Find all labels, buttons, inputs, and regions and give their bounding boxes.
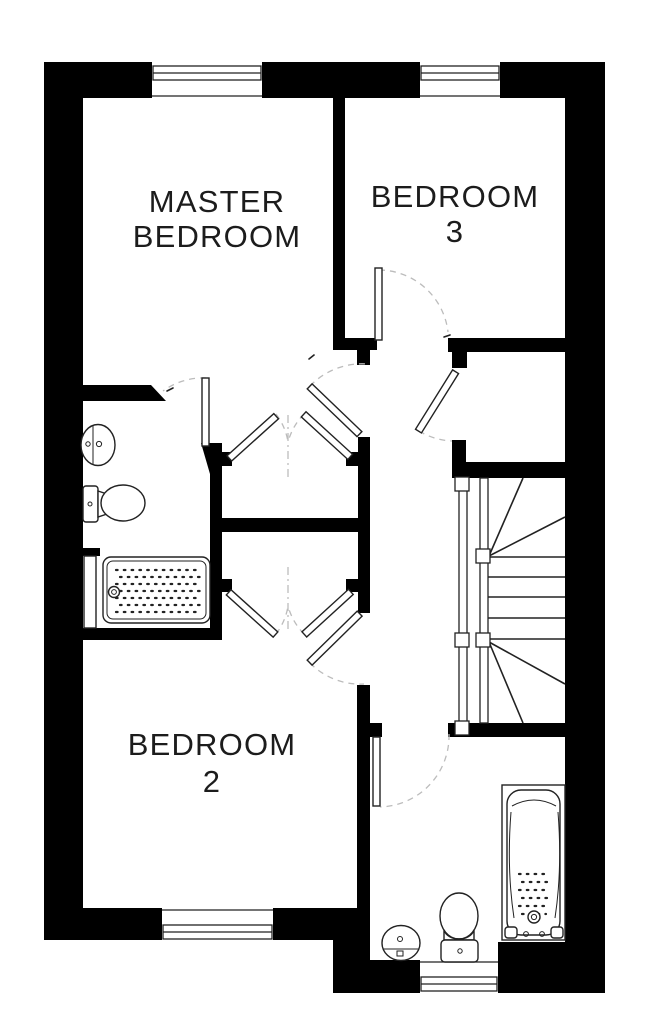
divider-end-stub bbox=[357, 350, 370, 365]
floor-plan: MASTER BEDROOM BEDROOM 3 BEDROOM 2 bbox=[0, 0, 658, 1022]
toilet-2 bbox=[440, 893, 478, 962]
top-wall-mid bbox=[262, 62, 420, 98]
room-label-bedroom2-line1: BEDROOM bbox=[128, 727, 297, 762]
door-leaf bbox=[416, 370, 459, 433]
door-swing-arc bbox=[310, 364, 367, 386]
door-swing-arc bbox=[288, 414, 304, 442]
toilet-cistern bbox=[83, 486, 98, 522]
window-bedroom2 bbox=[162, 908, 273, 940]
bathroom-door-stop bbox=[370, 723, 382, 737]
bedroom2-right-wall bbox=[357, 685, 370, 908]
bedroom2-bottom-wall-left bbox=[83, 908, 162, 940]
master-bed3-divider-wall bbox=[333, 98, 345, 338]
toilet bbox=[83, 485, 145, 522]
bath-foot bbox=[505, 927, 517, 938]
door-leaf bbox=[373, 737, 380, 806]
shower-stub-wall bbox=[83, 548, 100, 556]
room-label-master-bedroom-line2: BEDROOM bbox=[133, 219, 302, 254]
door-hallway bbox=[416, 370, 459, 441]
bathtub bbox=[502, 785, 565, 940]
stairs-outer-rail bbox=[459, 478, 467, 723]
door-bathroom2 bbox=[373, 734, 449, 807]
door-cupboard-lower bbox=[226, 567, 353, 637]
stair-winder bbox=[489, 517, 565, 556]
newel-post bbox=[476, 633, 490, 647]
room-label-bedroom2-line2: 2 bbox=[203, 764, 221, 799]
stair-winder bbox=[489, 478, 523, 556]
sink-2 bbox=[382, 926, 420, 961]
floor-plan-drawing: MASTER BEDROOM BEDROOM 3 BEDROOM 2 bbox=[0, 0, 658, 1022]
shower-screen bbox=[84, 556, 96, 628]
shower-tray bbox=[103, 557, 210, 623]
door-leaf bbox=[227, 414, 279, 461]
newel-post bbox=[476, 549, 490, 563]
toilet-bowl bbox=[101, 485, 145, 521]
toilet-cistern bbox=[441, 940, 478, 962]
stair-winder bbox=[489, 642, 523, 723]
shower-drain bbox=[109, 587, 120, 598]
door-swing-arc bbox=[379, 270, 448, 332]
bathroom-bottom-wall-right bbox=[498, 942, 605, 993]
window-bedroom3 bbox=[420, 62, 500, 98]
bedroom3-corner-post bbox=[452, 340, 467, 368]
right-wall bbox=[565, 62, 605, 993]
window-master bbox=[152, 62, 262, 98]
newel-post bbox=[455, 477, 469, 491]
bottom-step-column bbox=[333, 908, 370, 993]
bathroom-landing-wall bbox=[210, 455, 222, 638]
door-swing-arc bbox=[419, 431, 452, 441]
bathroom-bottom-wall-left bbox=[370, 960, 420, 993]
stairs-inner-rail bbox=[480, 478, 488, 723]
door-swing-arc bbox=[276, 606, 288, 634]
stairs-top-wall bbox=[452, 462, 565, 478]
cupboard-divider-wall bbox=[210, 518, 370, 532]
newel-post bbox=[455, 721, 469, 735]
window-opening bbox=[162, 908, 273, 940]
door-leaf bbox=[202, 378, 209, 446]
door-bathroom-corner bbox=[163, 378, 209, 446]
bath-drain bbox=[528, 911, 540, 923]
door-swing-arc bbox=[310, 663, 364, 684]
room-label-bedroom3-line1: BEDROOM bbox=[371, 179, 540, 214]
landing-right-wall bbox=[358, 437, 370, 613]
divider-end-bar bbox=[333, 338, 377, 350]
bath-foot bbox=[551, 927, 563, 938]
room-label-bedroom3-line2: 3 bbox=[446, 214, 464, 249]
staircase bbox=[455, 477, 565, 735]
door-swing-arc bbox=[380, 734, 449, 807]
bathroom-top-fixtures bbox=[81, 425, 210, 629]
stairs-top-post bbox=[452, 440, 466, 478]
sink-basin bbox=[382, 926, 420, 961]
door-leaf bbox=[226, 590, 278, 637]
sink bbox=[81, 425, 115, 466]
door-swing-arc bbox=[288, 606, 304, 634]
bedroom2-bottom-wall-right bbox=[273, 908, 333, 940]
master-bathroom-stub-wall bbox=[83, 385, 166, 401]
door-leaf bbox=[375, 268, 382, 340]
bathroom-bedroom2-wall bbox=[83, 628, 222, 640]
door-cupboard-upper bbox=[227, 412, 353, 478]
stair-winder bbox=[489, 642, 565, 684]
bathroom-bottom-fixtures bbox=[382, 785, 565, 962]
door-bedroom3 bbox=[375, 268, 448, 340]
shower-screen-panel bbox=[84, 556, 96, 628]
room-label-master-bedroom-line1: MASTER bbox=[149, 184, 285, 219]
newel-post bbox=[455, 633, 469, 647]
window-bathroom bbox=[420, 960, 498, 993]
left-wall bbox=[44, 62, 83, 940]
